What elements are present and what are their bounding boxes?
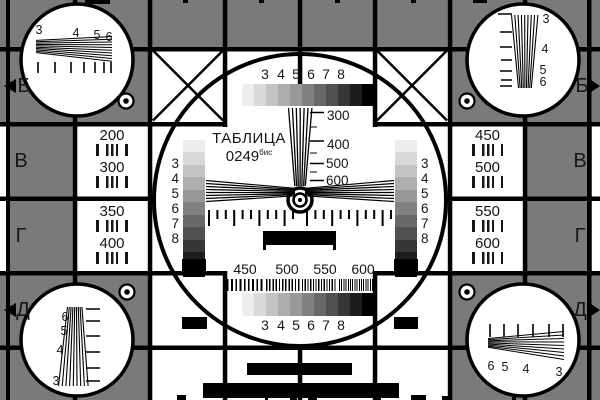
corner-bl-label: 5: [59, 325, 69, 338]
grayscale-step: [395, 165, 417, 177]
freq-label-600: 600: [465, 236, 510, 252]
edge-mark: [259, 0, 264, 3]
card-graphics: [0, 0, 600, 400]
grayscale-step: [326, 84, 338, 106]
grayscale-step: [395, 227, 417, 239]
grayscale-step: [242, 84, 254, 106]
top-scale-label: 7: [318, 67, 334, 82]
grayscale-column-right: [395, 140, 417, 277]
row-letter-left-v: В: [11, 151, 31, 172]
right-scale-label: 7: [421, 217, 436, 231]
burst-segment-550: [302, 279, 337, 291]
freq-label-550: 550: [465, 204, 510, 220]
bottom-scale-label: 3: [257, 318, 273, 333]
row-letter-right-g: Г: [570, 226, 590, 247]
corner-bl-label: 6: [60, 311, 70, 324]
edge-mark: [442, 396, 449, 400]
vwedge-label-600: 600: [326, 174, 349, 188]
edge-mark: [308, 395, 317, 400]
grayscale-step: [183, 152, 205, 164]
grayscale-step: [183, 177, 205, 189]
freq-label-500: 500: [465, 160, 510, 176]
edge-mark: [411, 0, 416, 3]
freq-bars-450: [465, 144, 510, 156]
grayscale-step: [302, 84, 314, 106]
row-letter-left-g: Г: [11, 226, 31, 247]
grayscale-bar-bottom: [242, 293, 374, 316]
center-black-bar-stub-right: [333, 245, 336, 250]
burst-segment-500: [266, 279, 300, 291]
grayscale-step: [338, 293, 350, 316]
grayscale-step: [278, 293, 290, 316]
grayscale-step: [278, 84, 290, 106]
edge-mark: [473, 0, 487, 3]
corner-br-label: 6: [486, 360, 496, 373]
grayscale-step: [362, 293, 374, 316]
left-scale-label: 4: [164, 172, 179, 186]
corner-br-label: 3: [554, 366, 564, 379]
bottom-scale-label: 7: [318, 318, 334, 333]
right-scale-label: 4: [421, 172, 436, 186]
edge-mark: [85, 0, 110, 4]
grayscale-step: [183, 202, 205, 214]
grayscale-step: [350, 84, 362, 106]
grayscale-step: [326, 293, 338, 316]
corner-tr-label: 4: [540, 43, 550, 56]
top-scale-label: 3: [257, 67, 273, 82]
burst-segment-450: [227, 279, 264, 291]
corner-bl-label: 3: [51, 375, 61, 388]
top-scale-label: 6: [303, 67, 319, 82]
corner-br-label: 5: [500, 361, 510, 374]
right-scale-label: 5: [421, 187, 436, 201]
row-letter-right-d: Д: [570, 300, 590, 321]
card-title: ТАБЛИЦА: [212, 131, 286, 147]
grayscale-step: [314, 84, 326, 106]
freq-bars-500: [465, 176, 510, 188]
grayscale-step: [266, 293, 278, 316]
freq-label-350: 350: [90, 204, 134, 220]
left-scale-label: 6: [164, 202, 179, 216]
anchor-rect-left-upper: [182, 259, 206, 271]
anchor-rect-right-upper: [394, 259, 418, 271]
freq-label-200: 200: [90, 128, 134, 144]
grayscale-step: [254, 84, 266, 106]
freq-bars-600: [465, 252, 510, 264]
grayscale-step: [395, 152, 417, 164]
bottom-scale-label: 4: [273, 318, 289, 333]
right-scale-label: 3: [421, 157, 436, 171]
grayscale-step: [395, 190, 417, 202]
corner-tr-label: 6: [538, 76, 548, 89]
freq-bars-550: [465, 220, 510, 232]
grayscale-step: [183, 227, 205, 239]
grayscale-step: [395, 240, 417, 252]
burst-label: 450: [228, 262, 262, 277]
burst-segment-600: [339, 279, 373, 291]
freq-label-450: 450: [465, 128, 510, 144]
center-black-bar: [263, 231, 336, 245]
grayscale-step: [290, 293, 302, 316]
left-scale-label: 3: [164, 157, 179, 171]
grayscale-step: [302, 293, 314, 316]
card-code: 0249бис: [216, 149, 282, 165]
grayscale-bar-top: [242, 84, 374, 106]
row-letter-right-v: В: [570, 151, 590, 172]
corner-tl-label: 3: [34, 24, 44, 37]
grayscale-step: [242, 293, 254, 316]
freq-bars-400: [90, 252, 134, 264]
edge-mark: [411, 395, 426, 400]
grayscale-step: [395, 177, 417, 189]
right-scale-label: 6: [421, 202, 436, 216]
top-scale-label: 5: [288, 67, 304, 82]
row-letter-right-b: Б: [572, 76, 592, 97]
edge-mark: [335, 0, 340, 3]
grayscale-step: [350, 293, 362, 316]
corner-bl-label: 4: [55, 344, 65, 357]
right-scale-label: 8: [421, 232, 436, 246]
test-card-0249: ТАБЛИЦА 0249бис 3 4 5 6 7 8 3 4 5 6 7 8 …: [0, 0, 600, 400]
freq-bars-200: [90, 144, 134, 156]
left-scale-label: 8: [164, 232, 179, 246]
grayscale-step: [183, 165, 205, 177]
bottom-scale-label: 6: [303, 318, 319, 333]
vwedge-label-500: 500: [326, 157, 349, 171]
burst-label: 500: [270, 262, 304, 277]
bottom-scale-label: 5: [288, 318, 304, 333]
left-scale-label: 5: [164, 187, 179, 201]
grayscale-column-left: [183, 140, 205, 277]
sync-bar-short: [247, 363, 352, 375]
left-scale-label: 7: [164, 217, 179, 231]
grayscale-step: [395, 215, 417, 227]
edge-mark: [290, 396, 297, 400]
burst-label: 550: [308, 262, 342, 277]
card-code-suffix: бис: [259, 148, 272, 157]
center-black-bar-stub-left: [263, 245, 266, 250]
grayscale-step: [266, 84, 278, 106]
grayscale-step: [183, 215, 205, 227]
corner-tl-label: 6: [104, 31, 114, 44]
burst-label: 600: [346, 262, 380, 277]
corner-tl-label: 5: [92, 29, 102, 42]
freq-bars-300: [90, 176, 134, 188]
edge-mark: [177, 395, 186, 400]
freq-label-400: 400: [90, 236, 134, 252]
grayscale-step: [254, 293, 266, 316]
sync-bar-wide: [203, 383, 399, 398]
grayscale-step: [395, 140, 417, 152]
vwedge-label-300: 300: [327, 109, 350, 123]
grayscale-step: [290, 84, 302, 106]
row-letter-left-d: Д: [13, 300, 33, 321]
grayscale-step: [362, 84, 374, 106]
corner-br-label: 4: [521, 363, 531, 376]
freq-label-300: 300: [90, 160, 134, 176]
grayscale-step: [395, 202, 417, 214]
corner-circle-top-left: [21, 4, 133, 116]
top-scale-label: 4: [273, 67, 289, 82]
grayscale-step: [183, 140, 205, 152]
anchor-rect-left-lower: [182, 317, 207, 329]
corner-tr-label: 3: [541, 13, 551, 26]
freq-bars-350: [90, 220, 134, 232]
grayscale-step: [183, 190, 205, 202]
anchor-rect-right-lower: [394, 317, 418, 329]
row-letter-left-b: Б: [14, 76, 34, 97]
corner-tl-label: 4: [71, 27, 81, 40]
grayscale-step: [338, 84, 350, 106]
bottom-scale-label: 8: [333, 318, 349, 333]
grayscale-step: [183, 240, 205, 252]
edge-mark: [183, 0, 188, 3]
vwedge-label-400: 400: [327, 138, 350, 152]
top-scale-label: 8: [333, 67, 349, 82]
grayscale-step: [314, 293, 326, 316]
